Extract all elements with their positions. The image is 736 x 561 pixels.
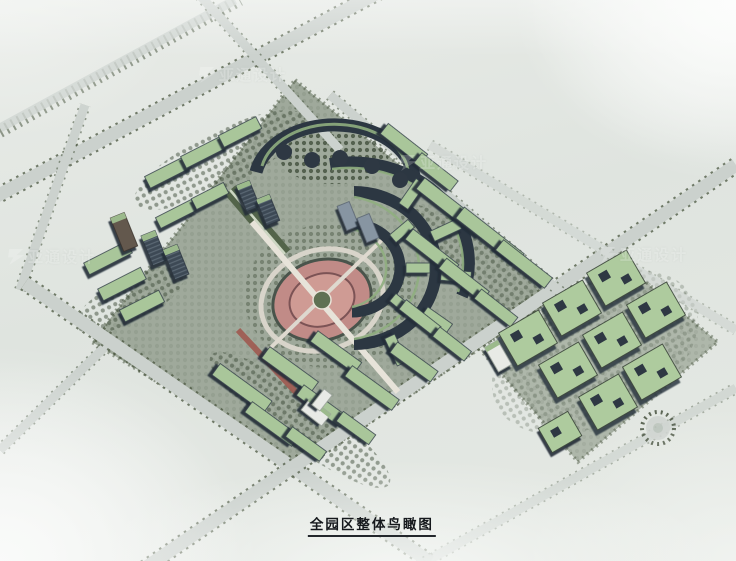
aerial-render: 亚通设计 亚通设计 亚通设计 亚通设计 全园区整体鸟瞰图 [0, 0, 736, 561]
figure-caption: 全园区整体鸟瞰图 [308, 513, 436, 537]
roundabout [642, 412, 674, 444]
rendered-scene [0, 0, 736, 561]
